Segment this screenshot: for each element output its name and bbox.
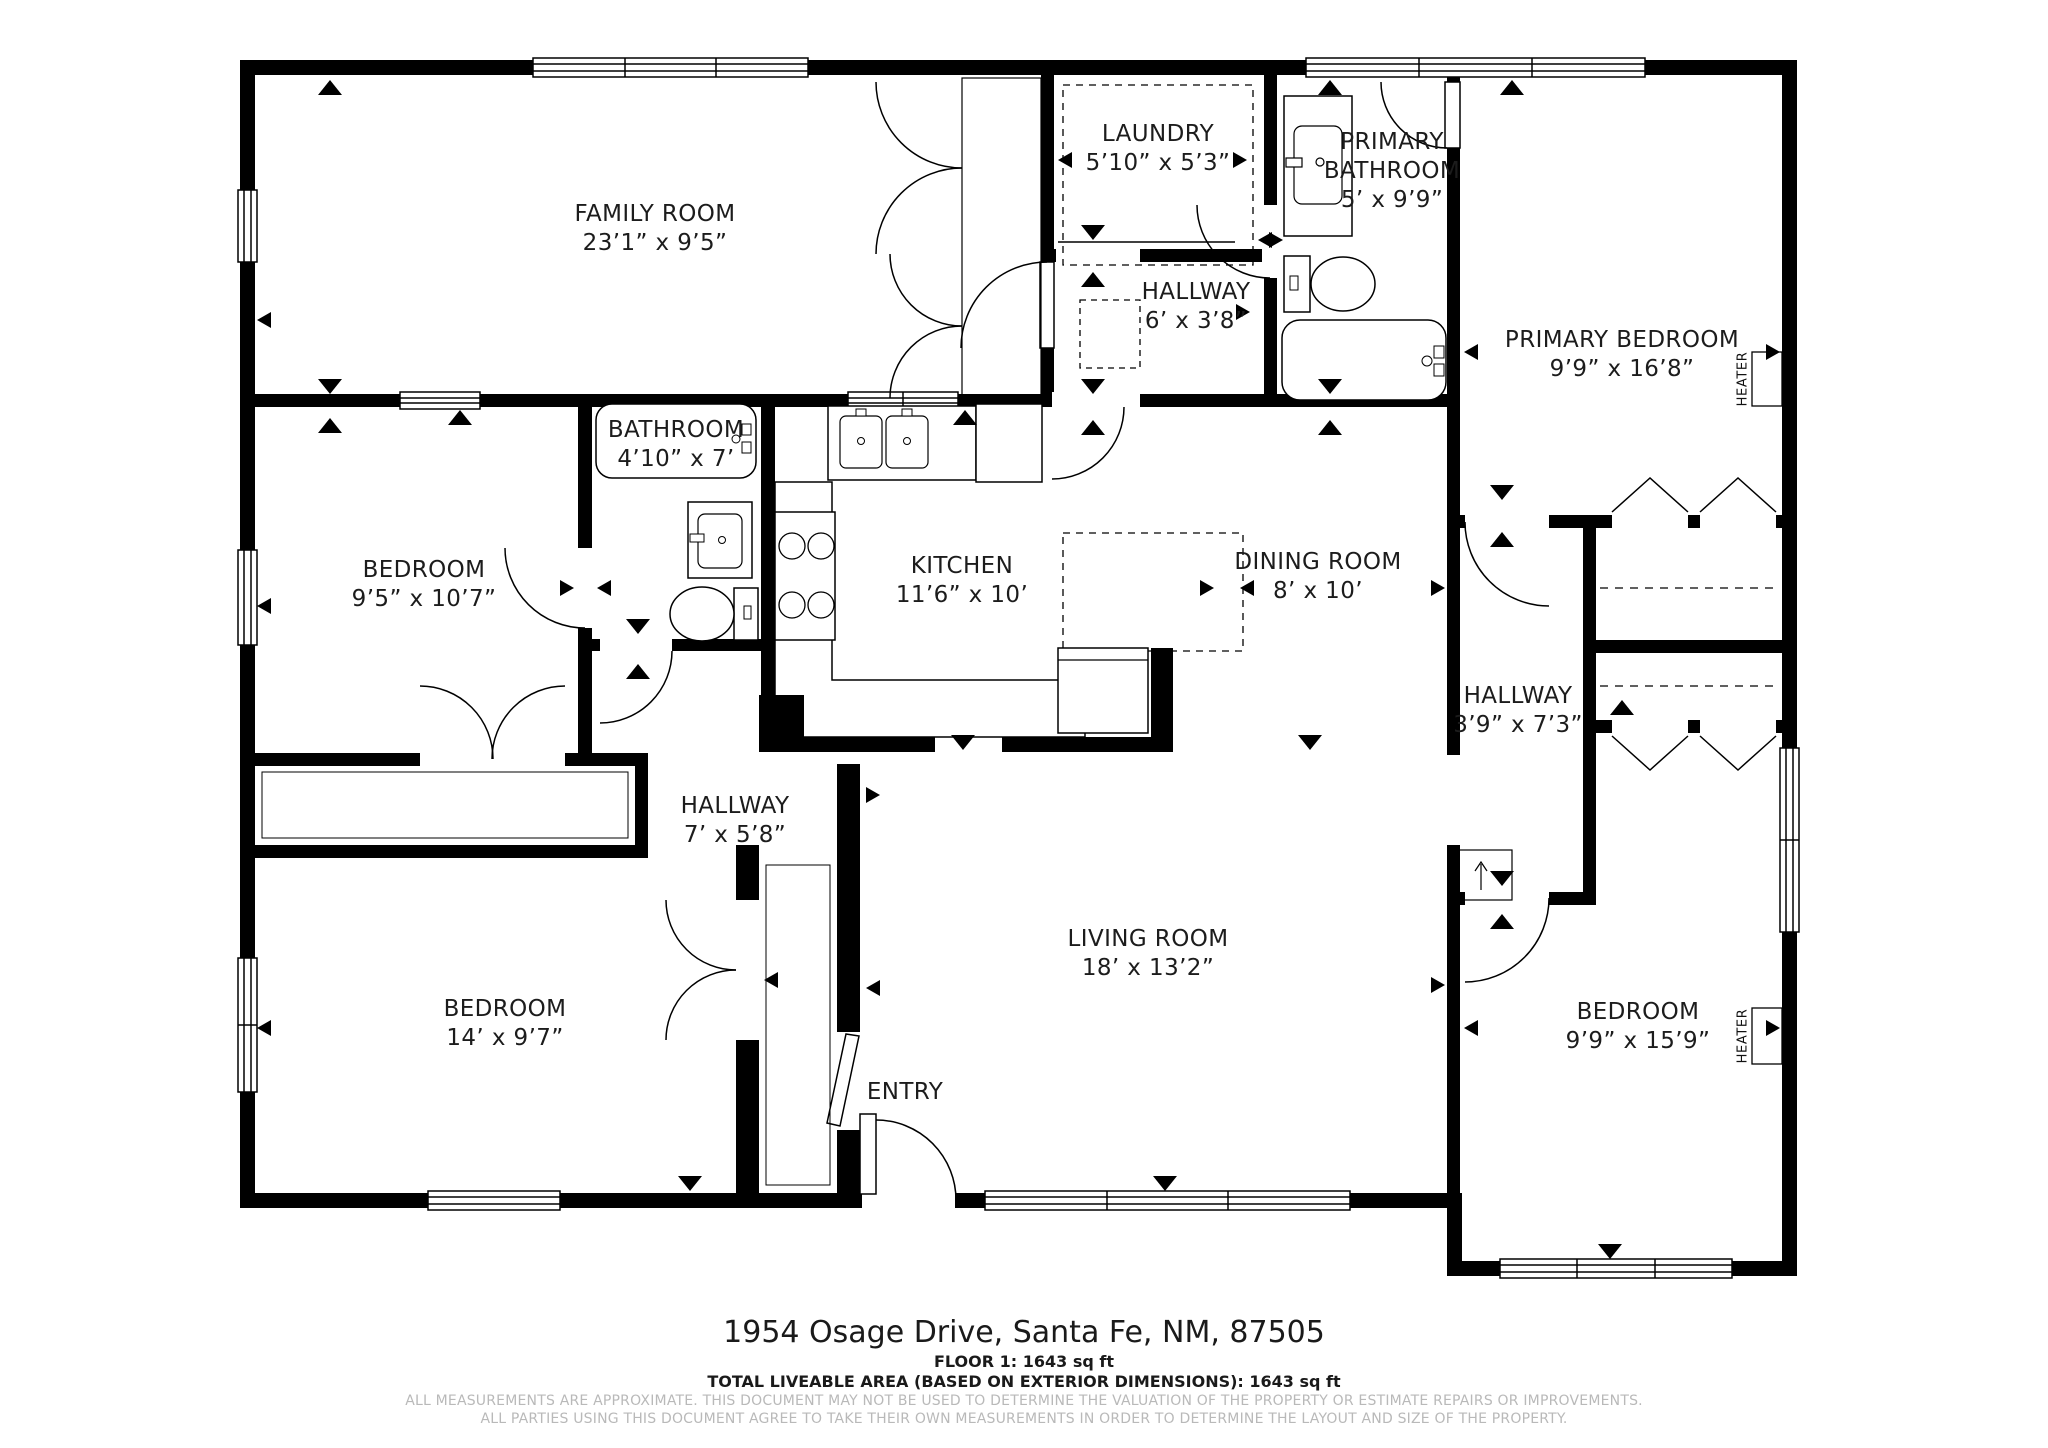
closet-chevron-down-2 — [1700, 736, 1776, 770]
front-door-panel — [860, 1114, 876, 1194]
window-bottom-wing — [1500, 1259, 1732, 1278]
bifold-arc-2 — [666, 970, 736, 1040]
room-label-hallway-wing: HALLWAY 3’9” x 7’3” — [1453, 682, 1583, 740]
utility-arrow — [1475, 862, 1487, 890]
room-name: BEDROOM — [1566, 998, 1711, 1027]
room-label-family-room: FAMILY ROOM 23’1” x 9’5” — [574, 200, 735, 258]
room-label-bedroom-lower-right: BEDROOM 9’9” x 15’9” — [1566, 998, 1711, 1056]
room-name: ENTRY — [867, 1078, 943, 1107]
room-name: HALLWAY — [1453, 682, 1583, 711]
kitchen-appliance — [976, 404, 1042, 482]
room-name: BEDROOM — [444, 995, 567, 1024]
window-top-family-room — [533, 58, 808, 77]
room-name: LIVING ROOM — [1068, 925, 1229, 954]
family-closet-arc-2 — [876, 168, 962, 254]
closet-chevron-down-1 — [1612, 736, 1688, 770]
disclaimer-line-1: ALL MEASUREMENTS ARE APPROXIMATE. THIS D… — [0, 1393, 2048, 1409]
stove-icon — [775, 512, 835, 640]
room-dims: 9’9” x 16’8” — [1505, 355, 1739, 384]
primary-bathtub-icon — [1282, 320, 1446, 400]
room-dims: 5’ x 9’9” — [1273, 186, 1511, 215]
kitchen-island-dashed — [1063, 533, 1243, 651]
room-label-bedroom-left: BEDROOM 9’5” x 10’7” — [352, 556, 497, 614]
room-dims: 14’ x 9’7” — [444, 1024, 567, 1053]
closet-chevron-up-2 — [1700, 478, 1776, 512]
room-name: FAMILY ROOM — [574, 200, 735, 229]
room-dims: 6’ x 3’8” — [1142, 307, 1251, 336]
room-dims: 3’9” x 7’3” — [1453, 711, 1583, 740]
room-label-bathroom: BATHROOM 4’10” x 7’ — [608, 416, 744, 474]
room-label-bedroom-lower-left: BEDROOM 14’ x 9’7” — [444, 995, 567, 1053]
room-name: DINING ROOM — [1234, 548, 1401, 577]
room-label-dining-room: DINING ROOM 8’ x 10’ — [1234, 548, 1401, 606]
room-name: KITCHEN — [896, 552, 1028, 581]
heater-label-top: HEATER — [1736, 352, 1751, 407]
hallway-storage-dashed — [1080, 300, 1140, 368]
exterior-walls — [240, 60, 1797, 1276]
room-dims: 11’6” x 10’ — [896, 581, 1028, 610]
hall-closet-shelf — [766, 865, 830, 1185]
room-dims: 18’ x 13’2” — [1068, 954, 1229, 983]
room-dims: 5’10” x 5’3” — [1086, 149, 1231, 178]
room-name: BEDROOM — [352, 556, 497, 585]
window-left-bedroom — [238, 550, 257, 645]
window-bottom-bedroom — [428, 1191, 560, 1210]
room-label-living-room: LIVING ROOM 18’ x 13’2” — [1068, 925, 1229, 983]
room-name: HALLWAY — [681, 792, 790, 821]
room-name: BATHROOM — [608, 416, 744, 445]
disclaimer-line-2: ALL PARTIES USING THIS DOCUMENT AGREE TO… — [0, 1411, 2048, 1427]
door-arc-family-laundry — [961, 262, 1047, 348]
bedroom-closet-shelf — [262, 772, 628, 838]
room-dims: 8’ x 10’ — [1234, 577, 1401, 606]
room-name: LAUNDRY — [1086, 120, 1231, 149]
room-label-hallway-center: HALLWAY 7’ x 5’8” — [681, 792, 790, 850]
closet-door-arc-2 — [492, 686, 565, 759]
bathroom-vanity-icon — [688, 502, 752, 578]
family-closet-arc-4 — [890, 326, 962, 398]
door-arc-bathroom — [600, 651, 672, 723]
room-dims: 9’9” x 15’9” — [1566, 1027, 1711, 1056]
window-left-family-room — [238, 190, 257, 262]
floor-plan-drawing — [0, 0, 2048, 1448]
heater-box-bottom — [1752, 1008, 1782, 1064]
toilet-icon — [670, 587, 758, 641]
primary-toilet-icon — [1284, 256, 1375, 312]
room-dims: 9’5” x 10’7” — [352, 585, 497, 614]
total-area-line: TOTAL LIVEABLE AREA (BASED ON EXTERIOR D… — [0, 1372, 2048, 1391]
fridge-icon — [1058, 648, 1148, 733]
room-label-laundry: LAUNDRY 5’10” x 5’3” — [1086, 120, 1231, 178]
room-label-primary-bathroom: PRIMARY BATHROOM 5’ x 9’9” — [1273, 128, 1511, 215]
room-dims: 4’10” x 7’ — [608, 445, 744, 474]
front-door-arc — [876, 1120, 956, 1200]
window-top-primary — [1306, 58, 1645, 77]
floor-area-line: FLOOR 1: 1643 sq ft — [0, 1352, 2048, 1371]
closet-chevron-up-1 — [1612, 478, 1688, 512]
family-closet-arc-1 — [876, 82, 962, 168]
windows — [238, 58, 1799, 1278]
room-name: PRIMARY BEDROOM — [1505, 326, 1739, 355]
family-closet-arc-3 — [890, 254, 962, 326]
door-arc-primary-bedroom — [1465, 522, 1549, 606]
passage-markers — [257, 80, 1780, 1259]
family-room-closet — [962, 78, 1041, 396]
window-interior-bedroom — [400, 392, 480, 409]
room-name: PRIMARY BATHROOM — [1273, 128, 1511, 186]
room-label-kitchen: KITCHEN 11’6” x 10’ — [896, 552, 1028, 610]
heater-label-bottom: HEATER — [1736, 1009, 1751, 1064]
heater-box-top — [1752, 352, 1782, 406]
room-name: HALLWAY — [1142, 278, 1251, 307]
window-bottom-living-room — [985, 1191, 1350, 1210]
room-label-primary-bedroom: PRIMARY BEDROOM 9’9” x 16’8” — [1505, 326, 1739, 384]
address-title: 1954 Osage Drive, Santa Fe, NM, 87505 — [0, 1315, 2048, 1350]
window-left-bedroom-lower — [238, 958, 257, 1092]
bifold-arc-1 — [666, 900, 736, 970]
door-panel-family-laundry — [1040, 262, 1054, 348]
room-dims: 23’1” x 9’5” — [574, 229, 735, 258]
room-label-hallway-upper: HALLWAY 6’ x 3’8” — [1142, 278, 1251, 336]
door-arc-wing-bedroom — [1465, 898, 1549, 982]
room-label-entry: ENTRY — [867, 1078, 943, 1107]
closet-door-arc-1 — [420, 686, 493, 759]
room-dims: 7’ x 5’8” — [681, 821, 790, 850]
window-right-wing — [1780, 748, 1799, 932]
door-arc-hallway-kitchen — [1052, 407, 1124, 479]
